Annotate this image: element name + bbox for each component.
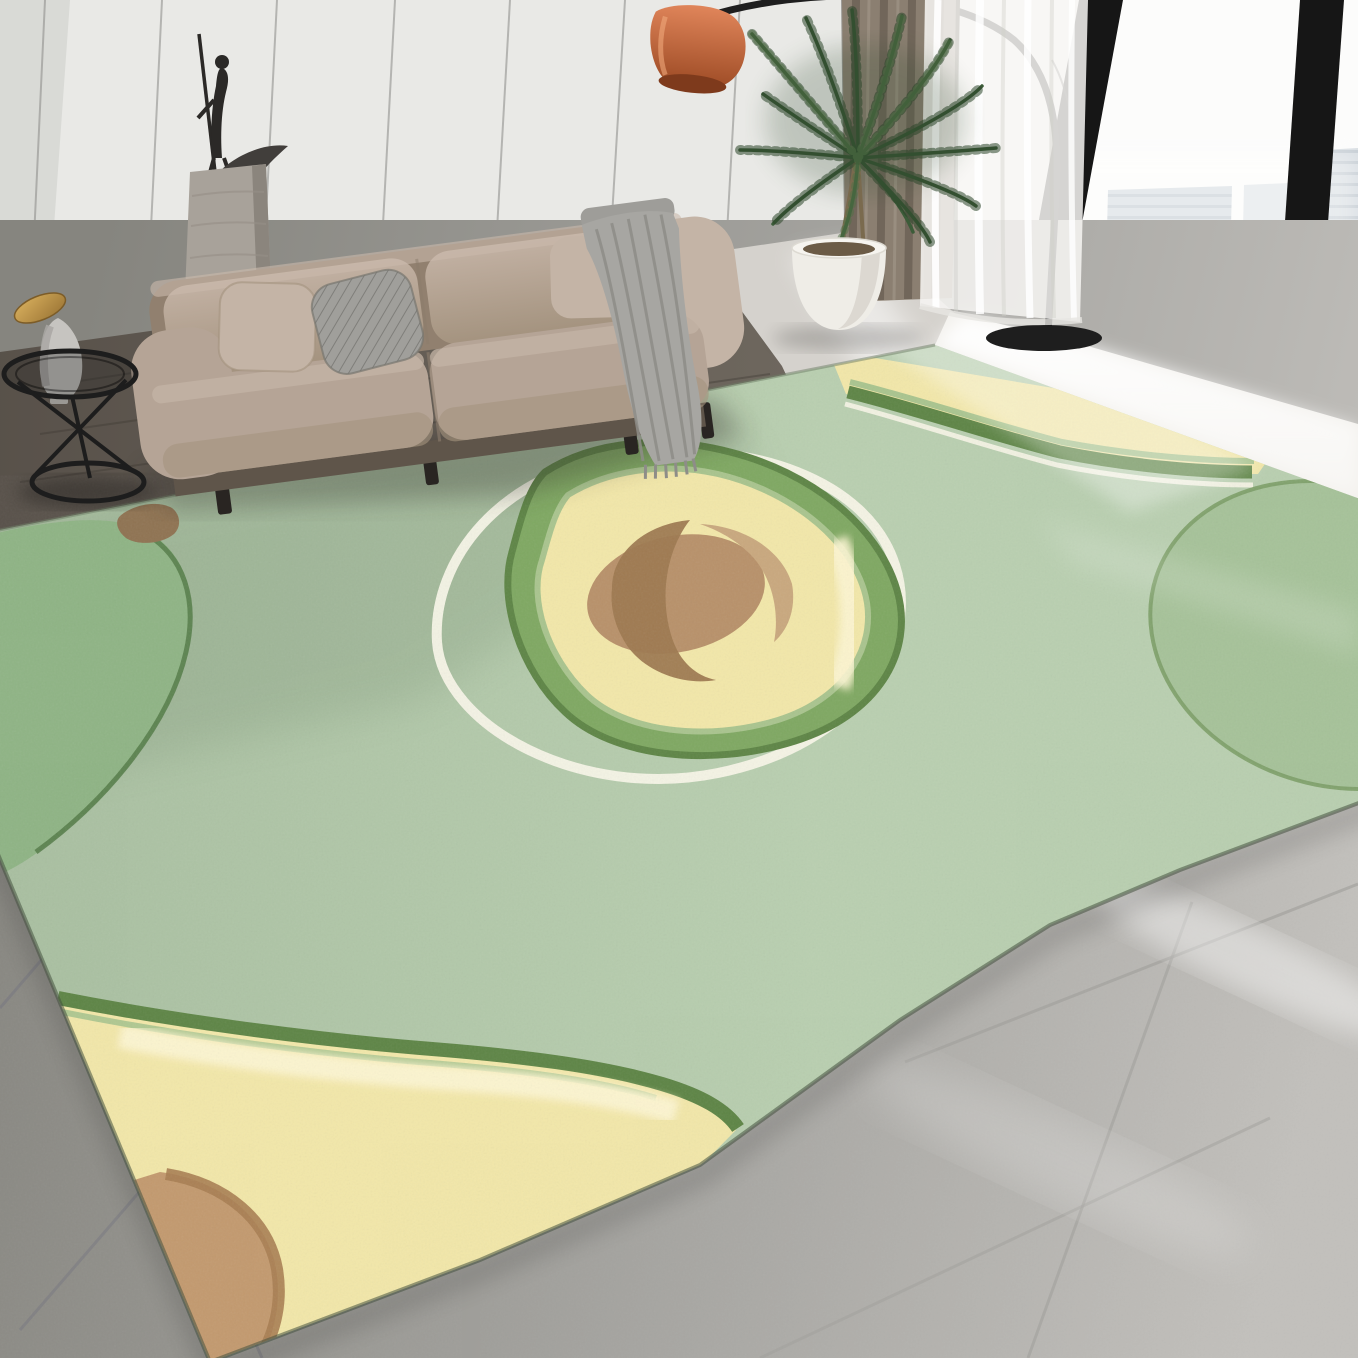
pot-soil xyxy=(803,242,875,256)
pillow-taupe-left xyxy=(218,282,316,372)
living-room-product-photo: Product photo: avocado-print sage green … xyxy=(0,0,1358,1358)
scene-canvas xyxy=(0,0,1358,1358)
lamp-base xyxy=(986,325,1102,351)
sculpture-head xyxy=(215,55,229,69)
